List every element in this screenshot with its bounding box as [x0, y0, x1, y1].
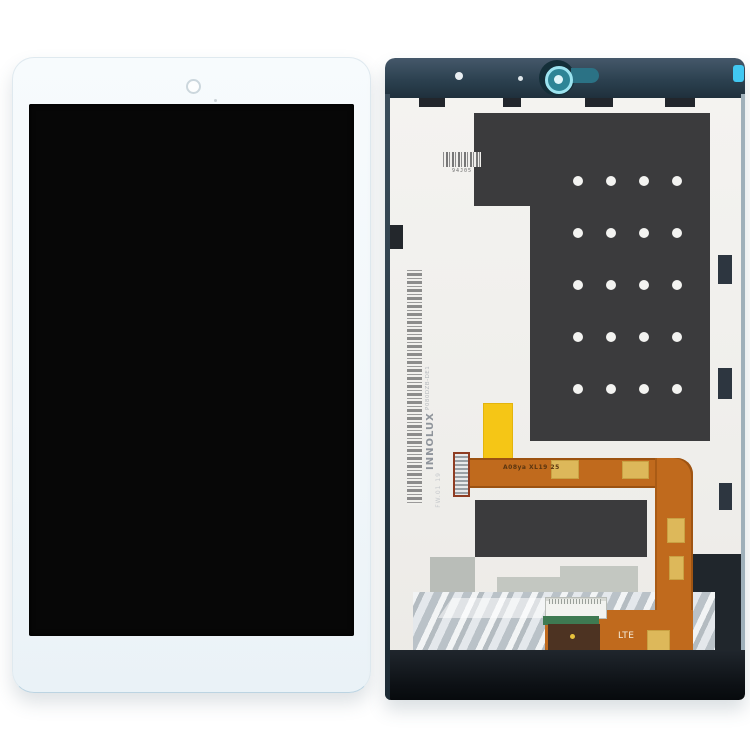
vent-hole-icon: [573, 176, 583, 186]
barcode-horizontal: [443, 152, 481, 167]
vent-hole-icon: [573, 280, 583, 290]
right-frame-edge: [741, 94, 745, 650]
cyan-corner-tab: [733, 65, 744, 82]
vent-hole-icon: [672, 280, 682, 290]
back-panel: 94J05 INNOLUX P080DZB-DE1 FW.01 19 A08ya…: [385, 58, 745, 700]
left-frame-edge: [385, 94, 390, 700]
panel-marking: INNOLUX P080DZB-DE1: [425, 270, 436, 470]
edge-tab: [718, 255, 732, 284]
gold-pad: [667, 518, 685, 543]
edge-tab: [719, 483, 732, 510]
kapton-tape: [483, 403, 513, 460]
edge-tab: [718, 368, 732, 399]
flex-marking-label: A08ya XL19 25: [503, 464, 560, 471]
frame-hole-icon: [455, 72, 463, 80]
top-frame: [385, 58, 745, 98]
product-photo: 94J05 INNOLUX P080DZB-DE1 FW.01 19 A08ya…: [0, 0, 750, 750]
edge-tab: [503, 98, 521, 107]
gold-pad: [669, 556, 684, 580]
barcode-vertical: [407, 270, 422, 505]
front-screen: [29, 104, 354, 636]
vent-hole-icon: [573, 384, 583, 394]
camera-bracket: [571, 68, 599, 83]
vent-hole-grid: [561, 155, 693, 415]
frame-hole-icon: [518, 76, 523, 81]
front-sensor-dot-icon: [214, 99, 217, 102]
alignment-dot-icon: [570, 634, 575, 639]
vent-hole-icon: [606, 228, 616, 238]
vent-hole-icon: [606, 384, 616, 394]
gold-pad: [622, 461, 649, 479]
front-panel: [12, 57, 371, 693]
vent-hole-icon: [639, 280, 649, 290]
rear-camera-lens-icon: [554, 75, 563, 84]
vent-hole-icon: [672, 228, 682, 238]
adhesive-tape-lower: [475, 500, 647, 557]
zif-connector-pins: [549, 599, 601, 604]
vent-hole-icon: [606, 332, 616, 342]
vent-hole-icon: [639, 228, 649, 238]
vent-hole-icon: [672, 332, 682, 342]
flex-connector-end: [453, 452, 470, 497]
brand-label: INNOLUX: [425, 412, 436, 470]
vent-hole-icon: [606, 176, 616, 186]
vent-hole-icon: [672, 384, 682, 394]
front-camera-hole-icon: [186, 79, 201, 94]
gray-tape: [430, 557, 475, 593]
panel-code-label: P080DZB-DE1: [425, 366, 436, 410]
vent-hole-icon: [573, 332, 583, 342]
vent-hole-icon: [606, 280, 616, 290]
side-marking-label: FW.01 19: [435, 472, 442, 508]
vent-hole-icon: [639, 176, 649, 186]
gold-pad: [647, 630, 670, 652]
vent-hole-icon: [639, 332, 649, 342]
bottom-frame-bar: K.B6T080-19W 20181217-M 5606B0800E001: [385, 650, 745, 700]
barcode-digits: 94J05: [443, 168, 481, 174]
vent-hole-icon: [639, 384, 649, 394]
vent-hole-icon: [672, 176, 682, 186]
vent-hole-icon: [573, 228, 583, 238]
lte-label: LTE: [618, 631, 634, 641]
